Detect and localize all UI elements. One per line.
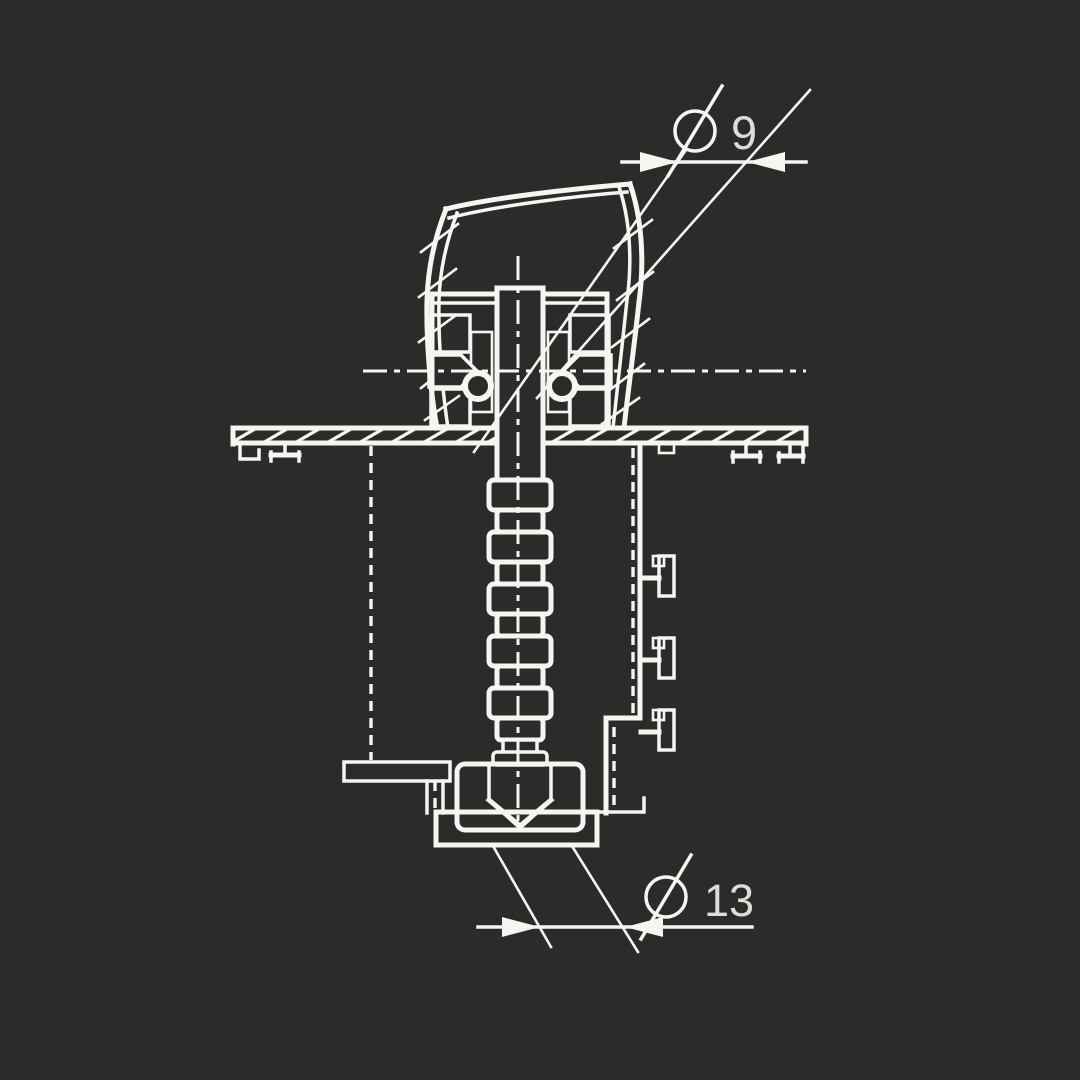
dimension-value: 9	[731, 106, 757, 159]
threaded-spindle	[489, 480, 551, 765]
dimension-value: 13	[704, 875, 754, 926]
technical-drawing-canvas: 9 13	[0, 0, 1080, 1080]
section-drawing: 9 13	[0, 0, 1080, 1080]
